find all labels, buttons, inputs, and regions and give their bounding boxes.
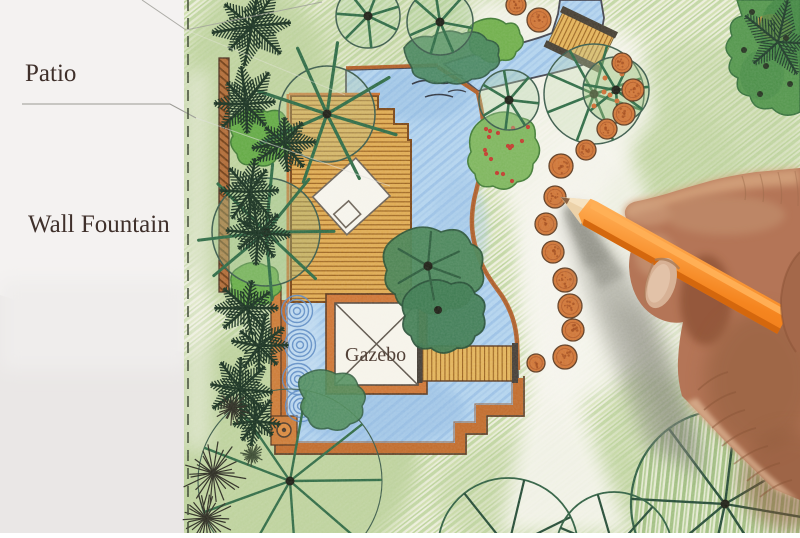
svg-text:Wall Fountain: Wall Fountain xyxy=(28,211,170,238)
svg-text:Patio: Patio xyxy=(25,60,76,87)
